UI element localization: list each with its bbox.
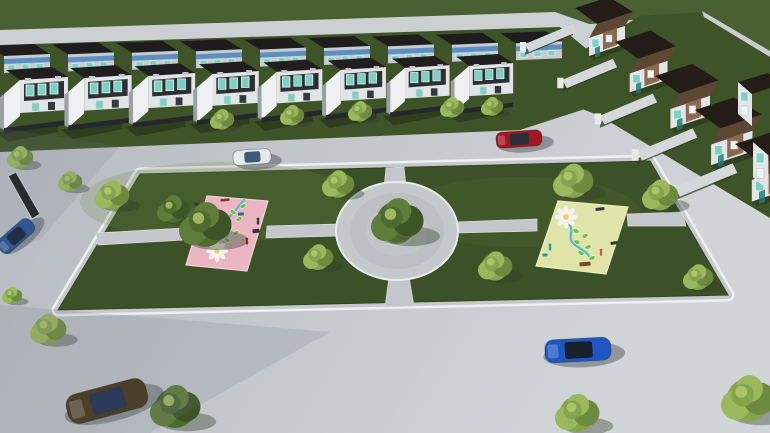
play-equipment — [252, 229, 259, 234]
park-path — [385, 277, 414, 307]
person-figure — [257, 218, 260, 225]
play-equipment — [579, 262, 590, 267]
play-equipment — [238, 213, 244, 216]
play-equipment — [543, 254, 548, 257]
aerial-render-image — [0, 0, 770, 433]
park-path — [266, 224, 338, 238]
person-figure — [600, 249, 603, 256]
park-path — [627, 212, 686, 226]
scene-svg — [0, 0, 770, 433]
person-figure — [549, 244, 552, 251]
